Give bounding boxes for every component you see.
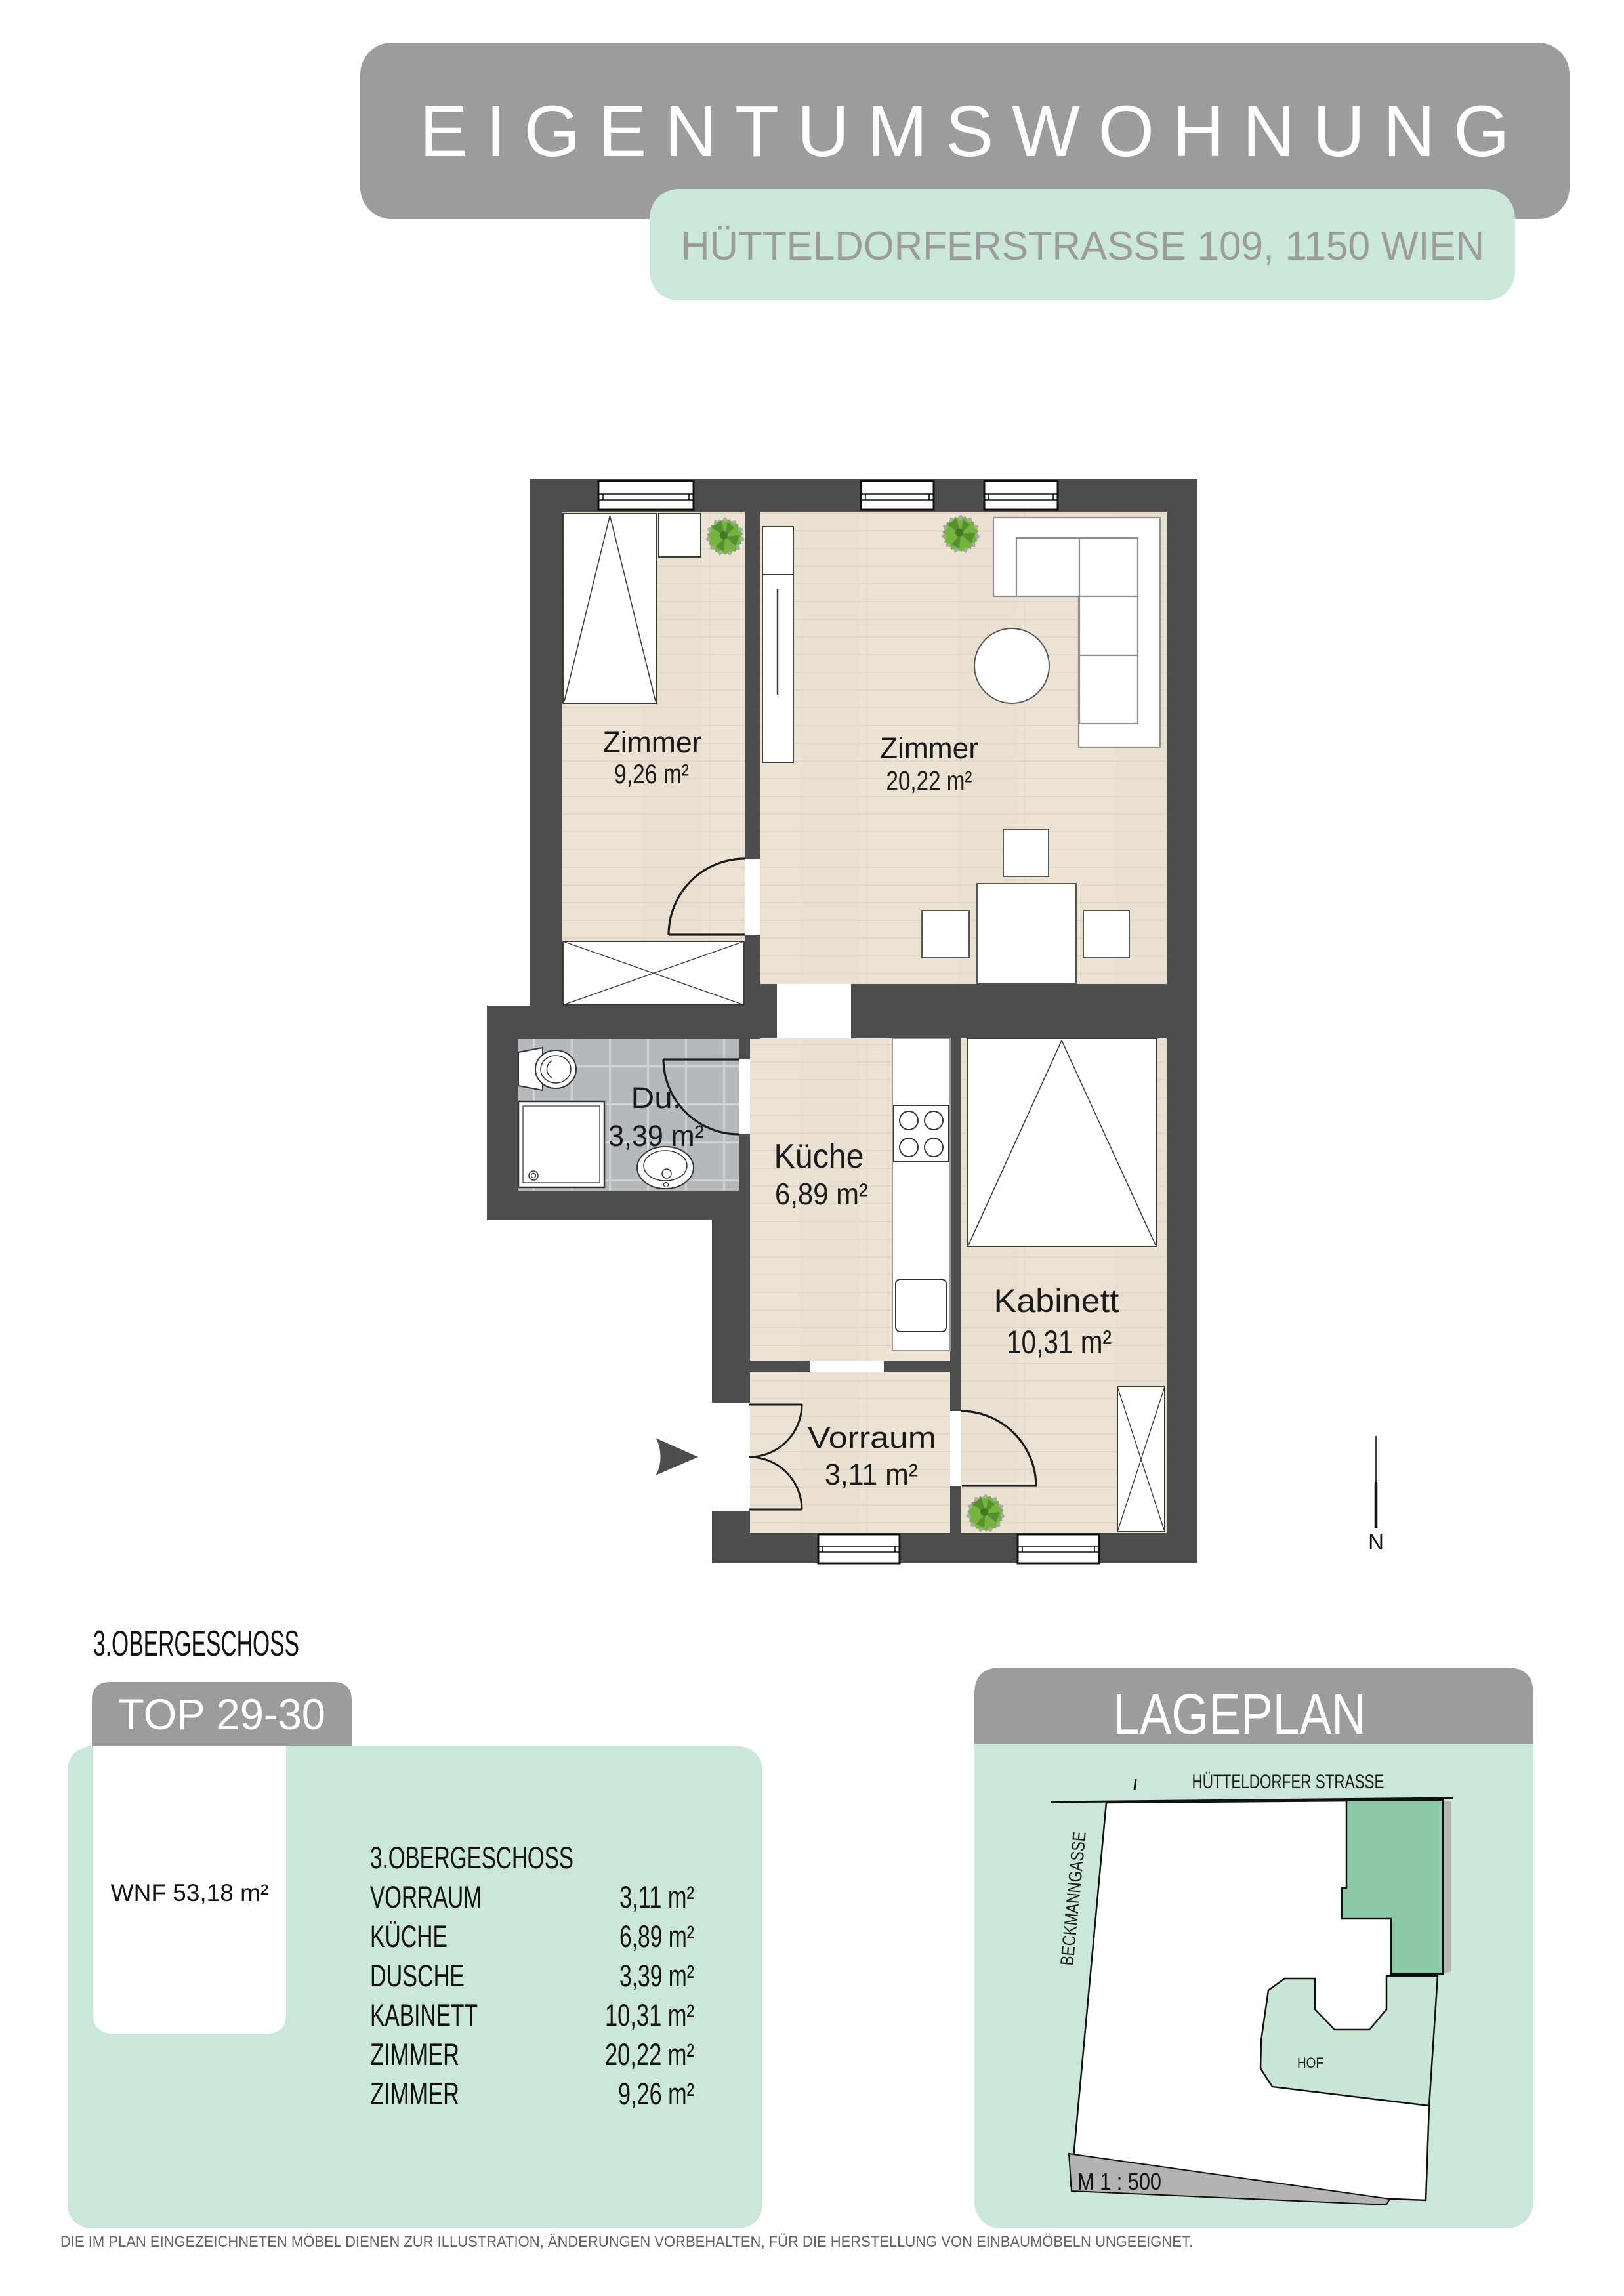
svg-text:9,26 m²: 9,26 m²: [614, 758, 689, 789]
svg-text:Zimmer: Zimmer: [603, 726, 702, 759]
svg-text:20,22 m²: 20,22 m²: [886, 766, 972, 796]
svg-text:M 1 : 500: M 1 : 500: [1077, 2168, 1161, 2195]
svg-text:KABINETT: KABINETT: [370, 1998, 478, 2032]
svg-text:10,31 m²: 10,31 m²: [1007, 1324, 1112, 1361]
svg-text:6,89 m²: 6,89 m²: [775, 1177, 868, 1211]
svg-text:Zimmer: Zimmer: [880, 731, 978, 765]
svg-text:HOF: HOF: [1297, 2055, 1323, 2071]
svg-text:VORRAUM: VORRAUM: [370, 1879, 482, 1914]
svg-text:N: N: [1368, 1530, 1384, 1554]
svg-text:KÜCHE: KÜCHE: [370, 1919, 448, 1954]
svg-text:3.OBERGESCHOSS: 3.OBERGESCHOSS: [370, 1840, 573, 1875]
svg-text:TOP 29-30: TOP 29-30: [118, 1690, 325, 1738]
svg-text:6,89 m²: 6,89 m²: [619, 1919, 694, 1954]
svg-text:3,11 m²: 3,11 m²: [825, 1458, 918, 1491]
svg-text:3,39 m²: 3,39 m²: [619, 1958, 694, 1993]
svg-text:ZIMMER: ZIMMER: [370, 2076, 459, 2111]
svg-text:LAGEPLAN: LAGEPLAN: [1113, 1683, 1366, 1746]
svg-text:10,31 m²: 10,31 m²: [605, 1998, 694, 2032]
svg-text:Du.: Du.: [631, 1081, 682, 1115]
svg-text:HÜTTELDORFERSTRASSE 109, 1150: HÜTTELDORFERSTRASSE 109, 1150 WIEN: [681, 224, 1484, 269]
svg-text:DUSCHE: DUSCHE: [370, 1958, 465, 1993]
svg-text:Küche: Küche: [774, 1138, 864, 1176]
svg-text:ZIMMER: ZIMMER: [370, 2037, 459, 2072]
svg-text:9,26 m²: 9,26 m²: [618, 2076, 694, 2111]
svg-text:WNF 53,18 m²: WNF 53,18 m²: [111, 1879, 269, 1906]
svg-text:3.OBERGESCHOSS: 3.OBERGESCHOSS: [93, 1623, 299, 1664]
svg-text:3,39 m²: 3,39 m²: [608, 1119, 704, 1153]
svg-text:20,22 m²: 20,22 m²: [605, 2037, 694, 2072]
svg-text:3,11 m²: 3,11 m²: [619, 1879, 694, 1914]
svg-text:Kabinett: Kabinett: [994, 1282, 1119, 1319]
svg-text:HÜTTELDORFER STRASSE: HÜTTELDORFER STRASSE: [1192, 1771, 1385, 1793]
svg-text:DIE IM PLAN EINGEZEICHNETEN MÖ: DIE IM PLAN EINGEZEICHNETEN MÖBEL DIENEN…: [60, 2233, 1193, 2251]
svg-text:Vorraum: Vorraum: [808, 1421, 936, 1454]
